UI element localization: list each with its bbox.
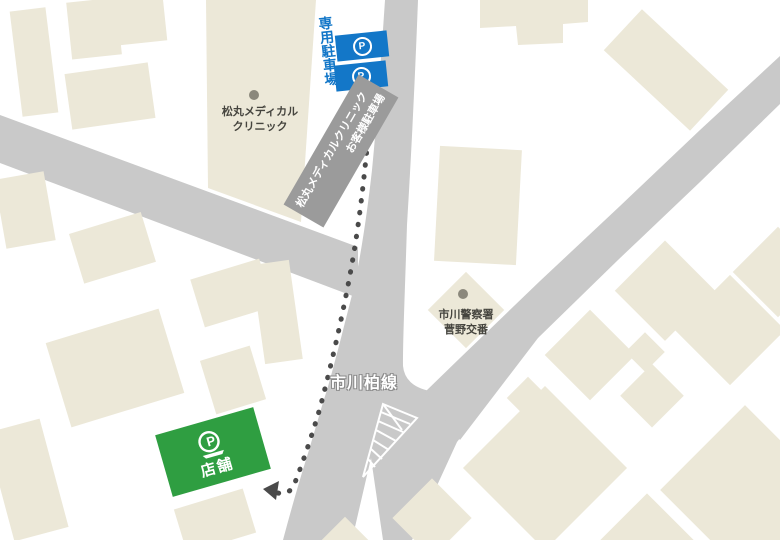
building: [0, 171, 56, 249]
building: [0, 419, 69, 540]
building: [113, 0, 168, 45]
building: [251, 260, 303, 364]
building: [46, 309, 185, 428]
building: [200, 346, 266, 415]
clinic-label-line1: 松丸メディカル: [200, 105, 320, 120]
building: [434, 146, 522, 265]
building: [545, 310, 636, 401]
clinic-marker-dot: [249, 90, 259, 100]
building: [10, 7, 59, 117]
police-marker-dot: [458, 289, 468, 299]
route-arrow-icon: [263, 481, 279, 500]
building: [604, 9, 728, 130]
clinic-label-line2: クリニック: [200, 120, 320, 135]
building: [66, 0, 122, 59]
police-box-label: 市川警察署 菅野交番: [406, 308, 526, 338]
map-canvas: [0, 0, 780, 540]
clinic-label: 松丸メディカル クリニック: [200, 105, 320, 135]
building: [463, 386, 627, 540]
police-label-line1: 市川警察署: [406, 308, 526, 323]
parking-icon: P: [352, 36, 373, 57]
building: [620, 364, 684, 428]
parking-space-1: P: [335, 30, 389, 61]
road-name-label: 市川柏線: [330, 369, 398, 393]
building: [65, 62, 156, 129]
building: [69, 212, 156, 284]
access-map: 専用駐車場 P P 松丸メディカルクリニック お客様駐車場 松丸メディカル クリ…: [0, 0, 780, 540]
building: [660, 405, 780, 540]
police-label-line2: 菅野交番: [406, 323, 526, 338]
building: [174, 488, 256, 540]
building: [625, 332, 665, 372]
building: [480, 0, 588, 45]
